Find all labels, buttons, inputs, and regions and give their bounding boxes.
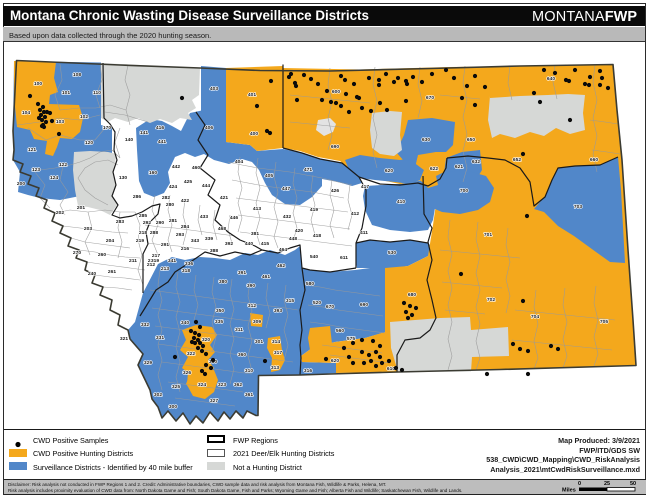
svg-text:292: 292	[143, 220, 151, 226]
svg-text:422: 422	[181, 198, 189, 204]
svg-text:325: 325	[172, 384, 180, 390]
svg-text:301: 301	[255, 339, 263, 345]
svg-text:201: 201	[77, 205, 85, 211]
svg-text:343: 343	[191, 238, 199, 244]
svg-text:282: 282	[162, 195, 170, 201]
svg-text:211: 211	[129, 258, 137, 264]
svg-text:283: 283	[116, 219, 124, 225]
svg-text:410: 410	[397, 199, 405, 205]
svg-text:281: 281	[169, 218, 177, 224]
svg-text:424: 424	[169, 184, 177, 190]
svg-text:315: 315	[286, 298, 294, 304]
svg-text:575: 575	[347, 336, 355, 342]
svg-text:690: 690	[360, 302, 368, 308]
svg-text:312: 312	[248, 303, 256, 309]
svg-text:460: 460	[192, 165, 200, 171]
svg-text:360: 360	[238, 352, 246, 358]
svg-text:311: 311	[235, 327, 243, 333]
svg-text:690: 690	[331, 144, 339, 150]
svg-text:404: 404	[235, 159, 243, 165]
svg-text:390: 390	[247, 283, 255, 289]
svg-text:284: 284	[181, 224, 189, 230]
svg-text:520: 520	[313, 300, 321, 306]
svg-text:339: 339	[205, 236, 213, 242]
svg-text:447: 447	[282, 186, 290, 192]
svg-text:471: 471	[304, 167, 312, 173]
svg-text:321: 321	[120, 336, 128, 342]
svg-text:320: 320	[202, 337, 210, 343]
svg-text:203: 203	[84, 226, 92, 232]
svg-text:336: 336	[185, 261, 193, 267]
svg-text:440: 440	[245, 241, 253, 247]
svg-text:705: 705	[600, 319, 608, 325]
svg-text:340: 340	[181, 320, 189, 326]
svg-text:415: 415	[261, 241, 269, 247]
svg-text:701: 701	[484, 232, 492, 238]
svg-text:660: 660	[590, 157, 598, 163]
svg-text:25: 25	[604, 481, 610, 487]
svg-text:270: 270	[73, 250, 81, 256]
svg-text:362: 362	[234, 382, 242, 388]
svg-text:670: 670	[326, 304, 334, 310]
svg-text:620: 620	[385, 168, 393, 174]
svg-text:425: 425	[184, 179, 192, 185]
svg-text:Miles: Miles	[562, 488, 576, 494]
svg-text:285: 285	[139, 213, 147, 219]
svg-text:218: 218	[139, 230, 147, 236]
svg-text:630: 630	[422, 137, 430, 143]
svg-text:332: 332	[141, 322, 149, 328]
svg-text:418: 418	[313, 233, 321, 239]
svg-text:420: 420	[295, 228, 303, 234]
svg-text:406: 406	[205, 125, 213, 131]
svg-text:324: 324	[198, 382, 206, 388]
svg-text:202: 202	[56, 210, 64, 216]
svg-text:314: 314	[272, 339, 280, 345]
svg-text:326: 326	[183, 370, 191, 376]
svg-text:392: 392	[225, 241, 233, 247]
svg-text:416: 416	[156, 125, 164, 131]
svg-text:331: 331	[156, 335, 164, 341]
svg-text:120: 120	[85, 140, 93, 146]
svg-text:102: 102	[80, 114, 88, 120]
svg-text:462: 462	[277, 263, 285, 269]
svg-text:286: 286	[133, 194, 141, 200]
svg-text:432: 432	[283, 214, 291, 220]
svg-text:464: 464	[279, 247, 287, 253]
svg-text:310: 310	[245, 368, 253, 374]
svg-text:108: 108	[73, 72, 81, 78]
svg-text:260: 260	[98, 252, 106, 258]
svg-text:703: 703	[574, 204, 582, 210]
svg-text:280: 280	[166, 202, 174, 208]
svg-text:580: 580	[306, 281, 314, 287]
svg-text:411: 411	[360, 230, 368, 236]
svg-text:421: 421	[220, 195, 228, 201]
svg-text:103: 103	[56, 119, 64, 125]
svg-text:110: 110	[93, 90, 101, 96]
svg-text:123: 123	[32, 167, 40, 173]
svg-text:313: 313	[271, 365, 279, 371]
svg-text:329: 329	[144, 360, 152, 366]
svg-text:704: 704	[531, 314, 539, 320]
svg-text:417: 417	[361, 184, 369, 190]
svg-text:50: 50	[630, 481, 636, 487]
svg-text:652: 652	[513, 157, 521, 163]
svg-text:316: 316	[304, 368, 312, 374]
svg-text:388: 388	[210, 248, 218, 254]
svg-text:140: 140	[125, 137, 133, 143]
svg-text:170: 170	[103, 125, 111, 131]
svg-text:446: 446	[230, 215, 238, 221]
svg-text:100: 100	[34, 81, 42, 87]
svg-text:319: 319	[151, 258, 159, 264]
svg-text:122: 122	[59, 162, 67, 168]
svg-text:322: 322	[187, 351, 195, 357]
svg-text:700: 700	[460, 188, 468, 194]
svg-text:261: 261	[108, 269, 116, 275]
svg-text:121: 121	[28, 147, 36, 153]
svg-text:219: 219	[136, 238, 144, 244]
svg-text:240: 240	[88, 271, 96, 277]
svg-text:640: 640	[547, 76, 555, 82]
svg-text:391: 391	[238, 270, 246, 276]
svg-text:216: 216	[181, 246, 189, 252]
svg-text:622: 622	[430, 166, 438, 172]
svg-text:650: 650	[467, 137, 475, 143]
svg-text:300: 300	[169, 404, 177, 410]
svg-text:426: 426	[331, 188, 339, 194]
svg-text:401: 401	[248, 92, 256, 98]
svg-text:461: 461	[262, 274, 270, 280]
svg-text:291: 291	[161, 242, 169, 248]
svg-text:448: 448	[289, 236, 297, 242]
svg-text:400: 400	[250, 131, 258, 137]
svg-text:444: 444	[202, 183, 210, 189]
svg-text:419: 419	[310, 207, 318, 213]
svg-text:540: 540	[310, 254, 318, 260]
svg-text:317: 317	[274, 350, 282, 356]
svg-text:200: 200	[17, 181, 25, 187]
svg-text:403: 403	[210, 86, 218, 92]
svg-text:405: 405	[265, 173, 273, 179]
svg-text:442: 442	[172, 164, 180, 170]
svg-text:288: 288	[150, 230, 158, 236]
svg-text:309: 309	[253, 319, 261, 325]
svg-text:204: 204	[106, 238, 114, 244]
svg-text:213: 213	[161, 266, 169, 272]
svg-text:341: 341	[168, 258, 176, 264]
svg-text:335: 335	[215, 319, 223, 325]
svg-text:600: 600	[332, 89, 340, 95]
svg-text:327: 327	[210, 398, 218, 404]
svg-text:670: 670	[426, 95, 434, 101]
svg-text:433: 433	[200, 214, 208, 220]
svg-text:621: 621	[455, 164, 463, 170]
svg-text:318: 318	[182, 268, 190, 274]
svg-text:413: 413	[253, 206, 261, 212]
svg-text:611: 611	[340, 255, 348, 261]
svg-text:381: 381	[251, 231, 259, 237]
svg-text:620: 620	[331, 358, 339, 364]
svg-text:130: 130	[119, 175, 127, 181]
svg-text:702: 702	[487, 297, 495, 303]
svg-text:141: 141	[140, 130, 148, 136]
svg-text:393: 393	[274, 308, 282, 314]
svg-text:632: 632	[472, 159, 480, 165]
svg-text:290: 290	[156, 220, 164, 226]
svg-text:160: 160	[149, 170, 157, 176]
svg-text:441: 441	[158, 139, 166, 145]
svg-text:380: 380	[219, 279, 227, 285]
svg-text:302: 302	[154, 392, 162, 398]
svg-text:293: 293	[176, 232, 184, 238]
svg-text:350: 350	[216, 308, 224, 314]
svg-text:104: 104	[22, 110, 30, 116]
svg-text:560: 560	[336, 328, 344, 334]
svg-text:361: 361	[245, 392, 253, 398]
svg-text:0: 0	[578, 481, 581, 487]
svg-text:124: 124	[50, 175, 58, 181]
svg-text:412: 412	[351, 211, 359, 217]
svg-text:323: 323	[218, 382, 226, 388]
svg-text:101: 101	[62, 90, 70, 96]
svg-text:530: 530	[388, 250, 396, 256]
svg-text:680: 680	[408, 292, 416, 298]
svg-text:468: 468	[218, 226, 226, 232]
